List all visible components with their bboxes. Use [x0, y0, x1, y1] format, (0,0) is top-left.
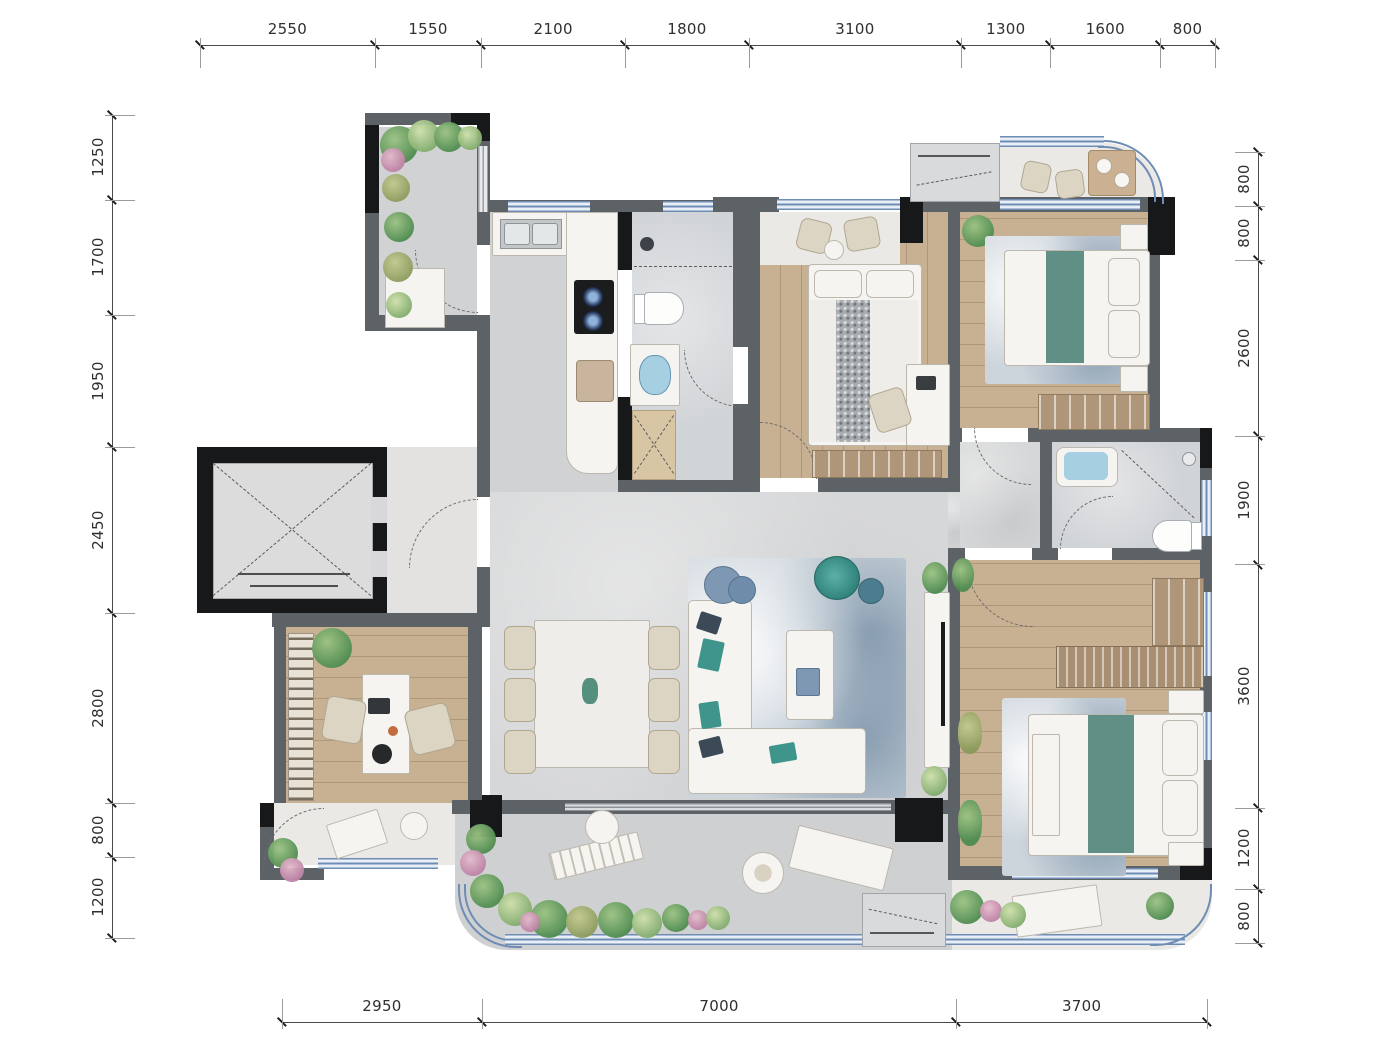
yard-wall-left-black	[365, 113, 379, 213]
dim-label: 1200	[89, 878, 107, 917]
dim-extension	[481, 38, 482, 68]
floor-plan: 2550155021001800310013001600800295070003…	[0, 0, 1400, 1050]
plant-flowering	[980, 900, 1002, 922]
dim-extension	[1235, 206, 1265, 207]
dim-label: 2100	[534, 20, 573, 38]
dim-label: 2950	[362, 997, 401, 1015]
pouf-teal-small	[858, 578, 884, 604]
dim-extension	[105, 613, 135, 614]
plant-flowering	[381, 148, 405, 172]
study-desk-mug	[388, 726, 398, 736]
dim-label: 3100	[835, 20, 874, 38]
dim-extension	[105, 857, 135, 858]
study-bay-table	[400, 812, 428, 840]
balcony-sw-black-corner	[260, 803, 274, 827]
kitchen-bath-divider-black-top	[618, 212, 632, 270]
dim-extension	[1235, 808, 1265, 809]
bathroom2-left-wall	[1040, 442, 1052, 548]
bathroom2-bottom-wall-left	[1040, 548, 1058, 560]
dim-label: 7000	[699, 997, 738, 1015]
dim-label: 1900	[1235, 480, 1253, 519]
dim-label: 1800	[667, 20, 706, 38]
bathroom1-toilet-bowl	[644, 292, 684, 325]
dim-extension	[1215, 38, 1216, 68]
plant	[922, 562, 948, 594]
dim-label: 800	[1235, 901, 1253, 931]
dim-extension	[1235, 436, 1265, 437]
dim-extension	[749, 38, 750, 68]
living-bottom-black-right	[895, 798, 943, 842]
plant-flowering	[520, 912, 540, 932]
ac-platform-bottom	[862, 893, 946, 947]
bedroom1-left-wall	[748, 212, 760, 478]
dining-chair	[504, 678, 536, 722]
master-pillow-1	[1162, 720, 1198, 776]
dim-label: 800	[1235, 218, 1253, 248]
plant	[383, 252, 413, 282]
balcony-tr-window	[1000, 136, 1104, 147]
study-desk-tray	[372, 744, 392, 764]
tr-balcony-tea-table	[1088, 150, 1136, 196]
dim-label: 2800	[89, 688, 107, 727]
plant-flowering	[688, 910, 708, 930]
kitchen-sink-basin-left	[504, 223, 530, 245]
dim-extension	[1235, 260, 1265, 261]
bathroom1-shower-glass	[634, 266, 732, 267]
dim-extension	[105, 447, 135, 448]
bedroom2-desk	[1038, 394, 1150, 430]
hallway-opening-floor	[948, 490, 960, 548]
elevator-door-gap-1	[371, 497, 387, 523]
bathroom1-right-wall-upper	[733, 212, 748, 347]
master-nightstand-1	[1168, 690, 1204, 714]
tea-table-cup-1	[1096, 158, 1112, 174]
elevator-line-2	[250, 585, 338, 587]
plant	[458, 126, 482, 150]
dim-extension	[375, 38, 376, 68]
bathroom2-toilet-bowl	[1152, 520, 1192, 552]
bedroom1-bed-runner	[836, 300, 870, 442]
dim-extension	[482, 999, 483, 1029]
plant-flowering	[280, 858, 304, 882]
plant	[382, 174, 410, 202]
master-top-wall-stub-right	[1032, 548, 1040, 560]
dim-label: 800	[89, 815, 107, 845]
tv-screen	[941, 622, 945, 726]
dim-baseline-left	[112, 115, 113, 938]
plant	[384, 212, 414, 242]
dim-extension	[105, 115, 135, 116]
elevator-line-1	[238, 573, 350, 575]
bathroom1-sink	[639, 355, 671, 395]
bedroom2-bottom-wall-left	[948, 428, 962, 442]
dim-label: 800	[1235, 164, 1253, 194]
balcony-round-table	[742, 852, 784, 894]
laundry-wood-mat	[632, 410, 676, 480]
bedroom1-bay-window	[777, 199, 900, 210]
dim-label: 2550	[268, 20, 307, 38]
dim-extension	[625, 38, 626, 68]
bathroom2-corner-black	[1200, 428, 1212, 468]
study-chair-1	[320, 695, 367, 745]
yard-wall-left	[365, 213, 379, 330]
kitchen-sink-basin-right	[532, 223, 558, 245]
dim-extension	[1235, 152, 1265, 153]
dining-chair	[648, 678, 680, 722]
study-top-wall	[272, 613, 482, 627]
entry-wall-upper	[477, 315, 490, 497]
elevator-wall-top	[197, 447, 387, 463]
dim-extension	[105, 315, 135, 316]
bedroom2-nightstand-2	[1120, 366, 1148, 392]
dim-extension	[956, 999, 957, 1029]
bedroom1-dresser	[812, 450, 942, 478]
dim-label: 1950	[89, 361, 107, 400]
dim-extension	[1235, 943, 1265, 944]
plant	[1000, 902, 1026, 928]
plant	[386, 292, 412, 318]
kitchen-window	[508, 201, 590, 212]
balcony-pouf	[585, 810, 619, 844]
dining-chair	[648, 730, 680, 774]
yard-kitchen-window	[478, 146, 488, 212]
bedrooms-divider-wall	[948, 212, 960, 490]
armchair-teal	[814, 556, 860, 600]
dim-baseline-bottom	[282, 1022, 1207, 1023]
dim-label: 2450	[89, 510, 107, 549]
dim-extension	[961, 38, 962, 68]
plant	[958, 712, 982, 754]
dim-extension	[105, 200, 135, 201]
plant	[921, 766, 947, 796]
study-left-wall	[274, 627, 286, 803]
bedroom2-corner-black-column	[1148, 197, 1175, 255]
dining-centerpiece	[582, 678, 598, 704]
bedroom2-bed-runner	[1046, 251, 1084, 363]
dim-baseline-top	[200, 45, 1215, 46]
dim-extension	[1235, 564, 1265, 565]
plant	[952, 558, 974, 592]
plant	[1146, 892, 1174, 920]
dim-extension	[1160, 38, 1161, 68]
dim-label: 1550	[408, 20, 447, 38]
plant	[662, 904, 690, 932]
sofa-cushion-teal-2	[698, 701, 721, 730]
tr-balcony-chair-2	[1054, 168, 1086, 200]
dim-label: 3700	[1062, 997, 1101, 1015]
kitchen-bath-divider-black-bottom	[618, 397, 632, 482]
dim-label: 1700	[89, 238, 107, 277]
bathroom1-bottom-wall	[618, 480, 748, 492]
master-bottom-black-corner	[1180, 866, 1212, 880]
study-living-wall	[468, 613, 482, 800]
pouf-blue-2	[728, 576, 756, 604]
master-bed-runner	[1088, 715, 1134, 853]
stove-burner-2	[582, 310, 604, 332]
plant	[598, 902, 634, 938]
dim-extension	[105, 803, 135, 804]
dim-label: 800	[1173, 20, 1203, 38]
dim-label: 1250	[89, 138, 107, 177]
study-desk-laptop	[368, 698, 390, 714]
bay-table	[824, 240, 844, 260]
elevator-door-gap-2	[371, 551, 387, 577]
master-dresser	[1152, 578, 1204, 646]
bathroom1-showerhead	[640, 237, 654, 251]
bathroom2-window	[1201, 480, 1212, 536]
yard-wall-top	[365, 113, 453, 125]
dim-label: 1200	[1235, 829, 1253, 868]
plant-flowering	[460, 850, 486, 876]
bay-right-black-column	[900, 197, 923, 243]
dim-extension	[1050, 38, 1051, 68]
dim-extension	[282, 999, 283, 1029]
bedroom2-pillow-2	[1108, 310, 1140, 358]
bedroom2-pillow-1	[1108, 258, 1140, 306]
dim-baseline-right	[1258, 152, 1259, 943]
balcony-sliding-door	[565, 803, 891, 811]
dim-label: 3600	[1235, 666, 1253, 705]
bay-left-wall	[713, 197, 779, 212]
bedroom1-pillow-2	[866, 270, 914, 298]
bedroom2-nightstand-1	[1120, 224, 1148, 250]
kitchen-counter-right	[566, 212, 618, 474]
dim-label: 1300	[986, 20, 1025, 38]
elevator-wall-left	[197, 447, 213, 613]
ac-platform-bottom-line	[870, 932, 934, 934]
bedroom1-bottom-wall	[818, 478, 960, 492]
bay-chair-2	[842, 215, 881, 252]
bathroom2-drain	[1182, 452, 1196, 466]
bedroom1-desk-laptop	[916, 376, 936, 390]
stove-burner-1	[582, 286, 604, 308]
dining-chair	[504, 626, 536, 670]
dim-extension	[105, 938, 135, 939]
coffee-table-book	[796, 668, 820, 696]
ac-platform-top-line	[918, 155, 990, 157]
master-bed-bench	[1032, 734, 1060, 836]
balcony-sw-window	[318, 858, 438, 869]
plant	[958, 800, 982, 846]
dining-chair	[504, 730, 536, 774]
plant	[706, 906, 730, 930]
kitchen-coffee-station	[576, 360, 614, 402]
dim-extension	[1235, 889, 1265, 890]
master-nightstand-2	[1168, 842, 1204, 866]
plant	[312, 628, 352, 668]
bathroom1-right-wall-lower	[733, 404, 748, 492]
bedroom2-bottom-wall	[1028, 428, 1212, 442]
bedroom1-bottom-wall-left	[748, 478, 760, 492]
plant	[950, 890, 984, 924]
bedroom1-pillow-1	[814, 270, 862, 298]
dim-label: 1600	[1086, 20, 1125, 38]
elevator-wall-bottom	[197, 597, 387, 613]
tea-table-cup-2	[1114, 172, 1130, 188]
dining-chair	[648, 626, 680, 670]
dim-extension	[1207, 999, 1208, 1029]
bathroom2-bathtub-water	[1064, 452, 1108, 480]
tv-console	[924, 592, 950, 768]
elevator-wall-right	[371, 447, 387, 613]
plant	[632, 908, 662, 938]
plant	[566, 906, 598, 938]
master-wardrobe	[1056, 646, 1204, 688]
bathroom1-window	[663, 201, 715, 212]
dim-label: 2600	[1235, 328, 1253, 367]
study-bookshelf	[288, 633, 314, 801]
dim-extension	[200, 38, 201, 68]
master-pillow-2	[1162, 780, 1198, 836]
